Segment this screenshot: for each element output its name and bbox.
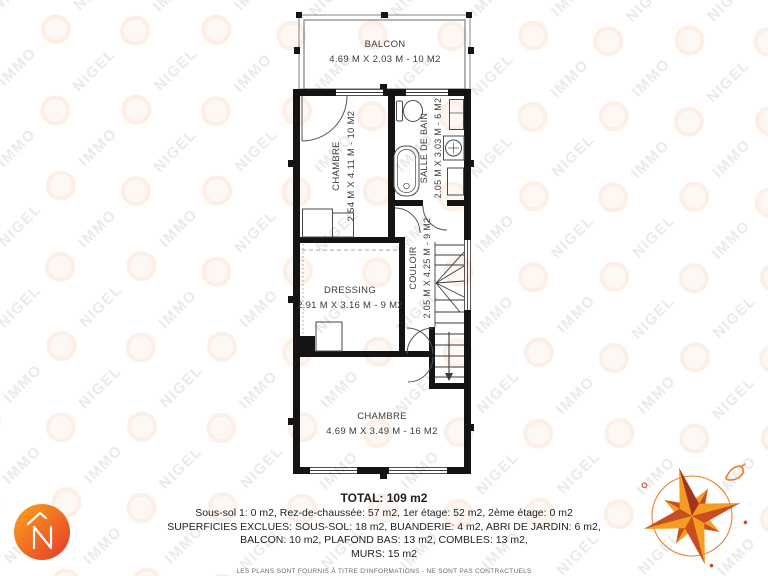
nigel-immo-logo-icon [13,503,71,561]
toilet-icon [397,101,403,121]
floor-plan-page: NIGELIMMONIGELIMMONIGELIMMONIGELIMMONIGE… [0,0,768,576]
balcony-outline [294,12,474,89]
compass-rose-icon [632,452,756,576]
compass-north-glyph [726,464,745,480]
